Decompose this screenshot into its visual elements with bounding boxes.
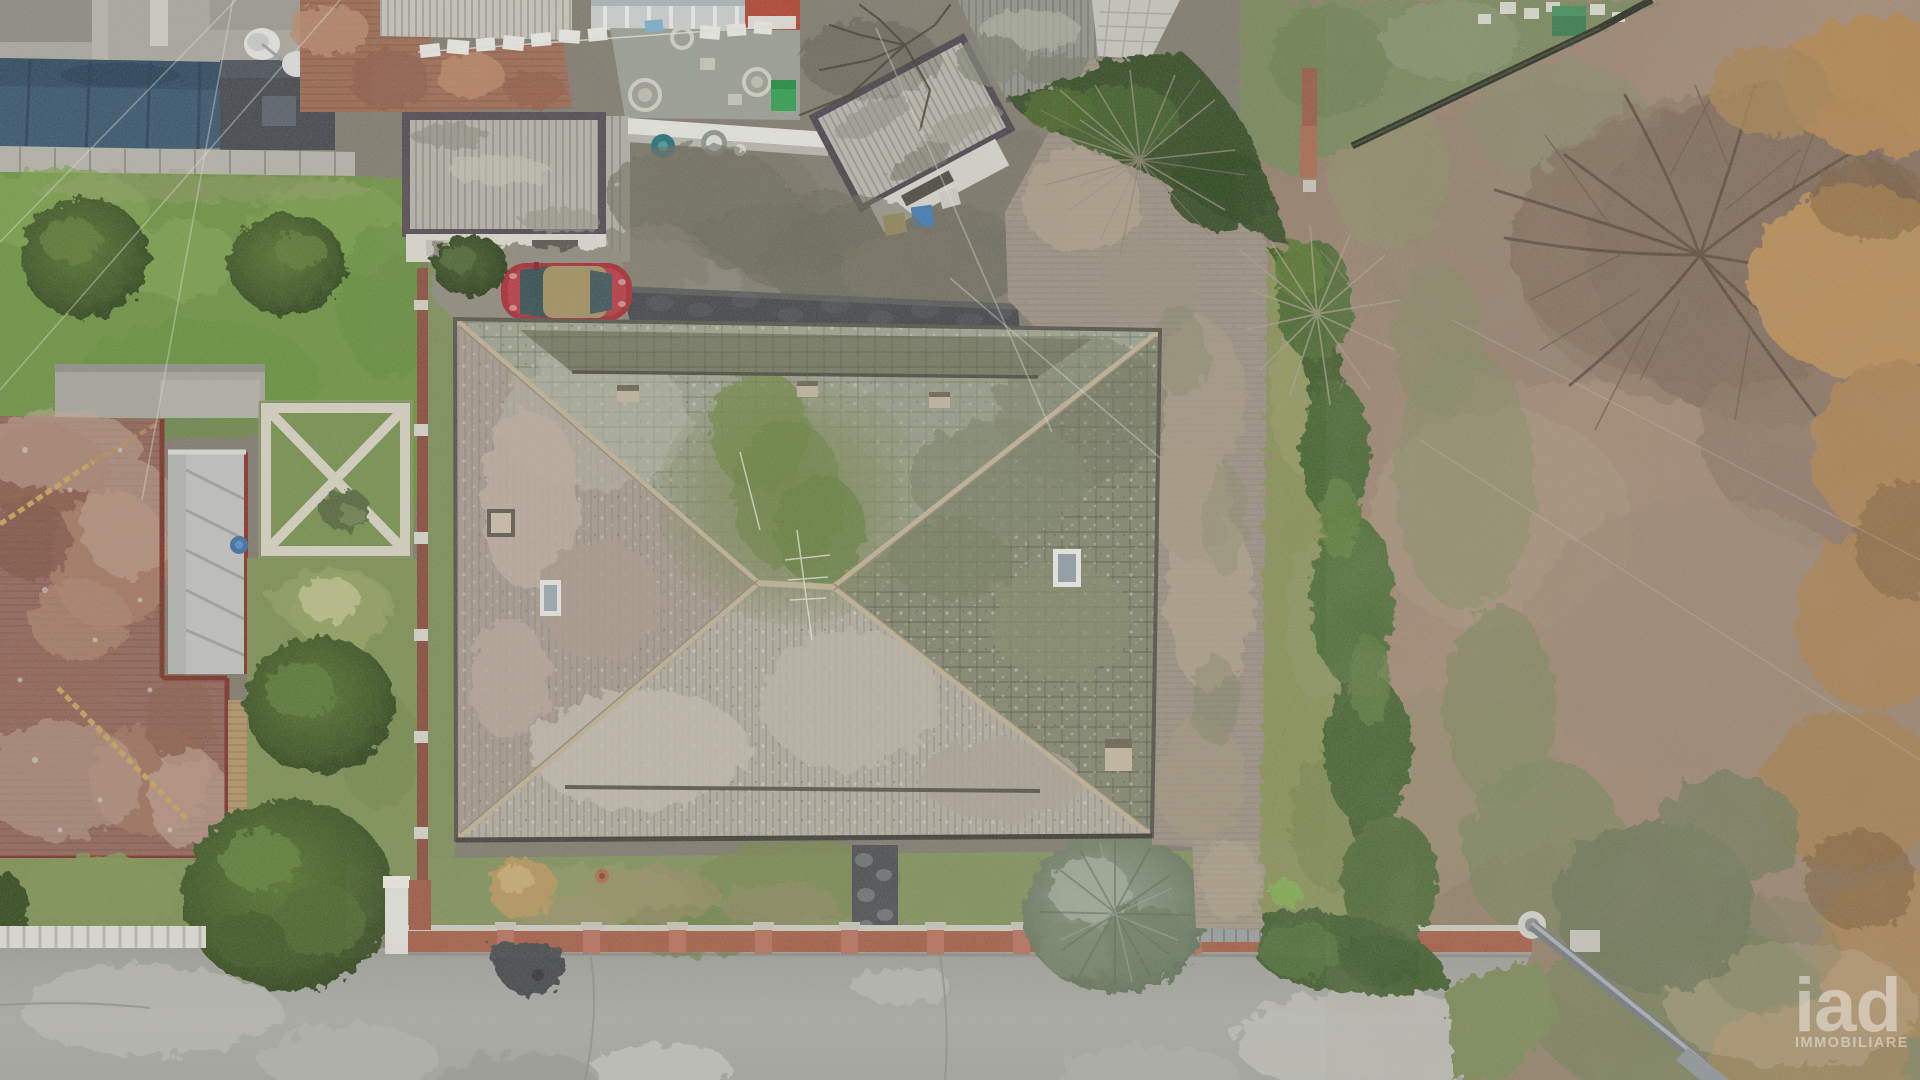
svg-text:IMMOBILIARE: IMMOBILIARE	[1795, 1035, 1909, 1051]
